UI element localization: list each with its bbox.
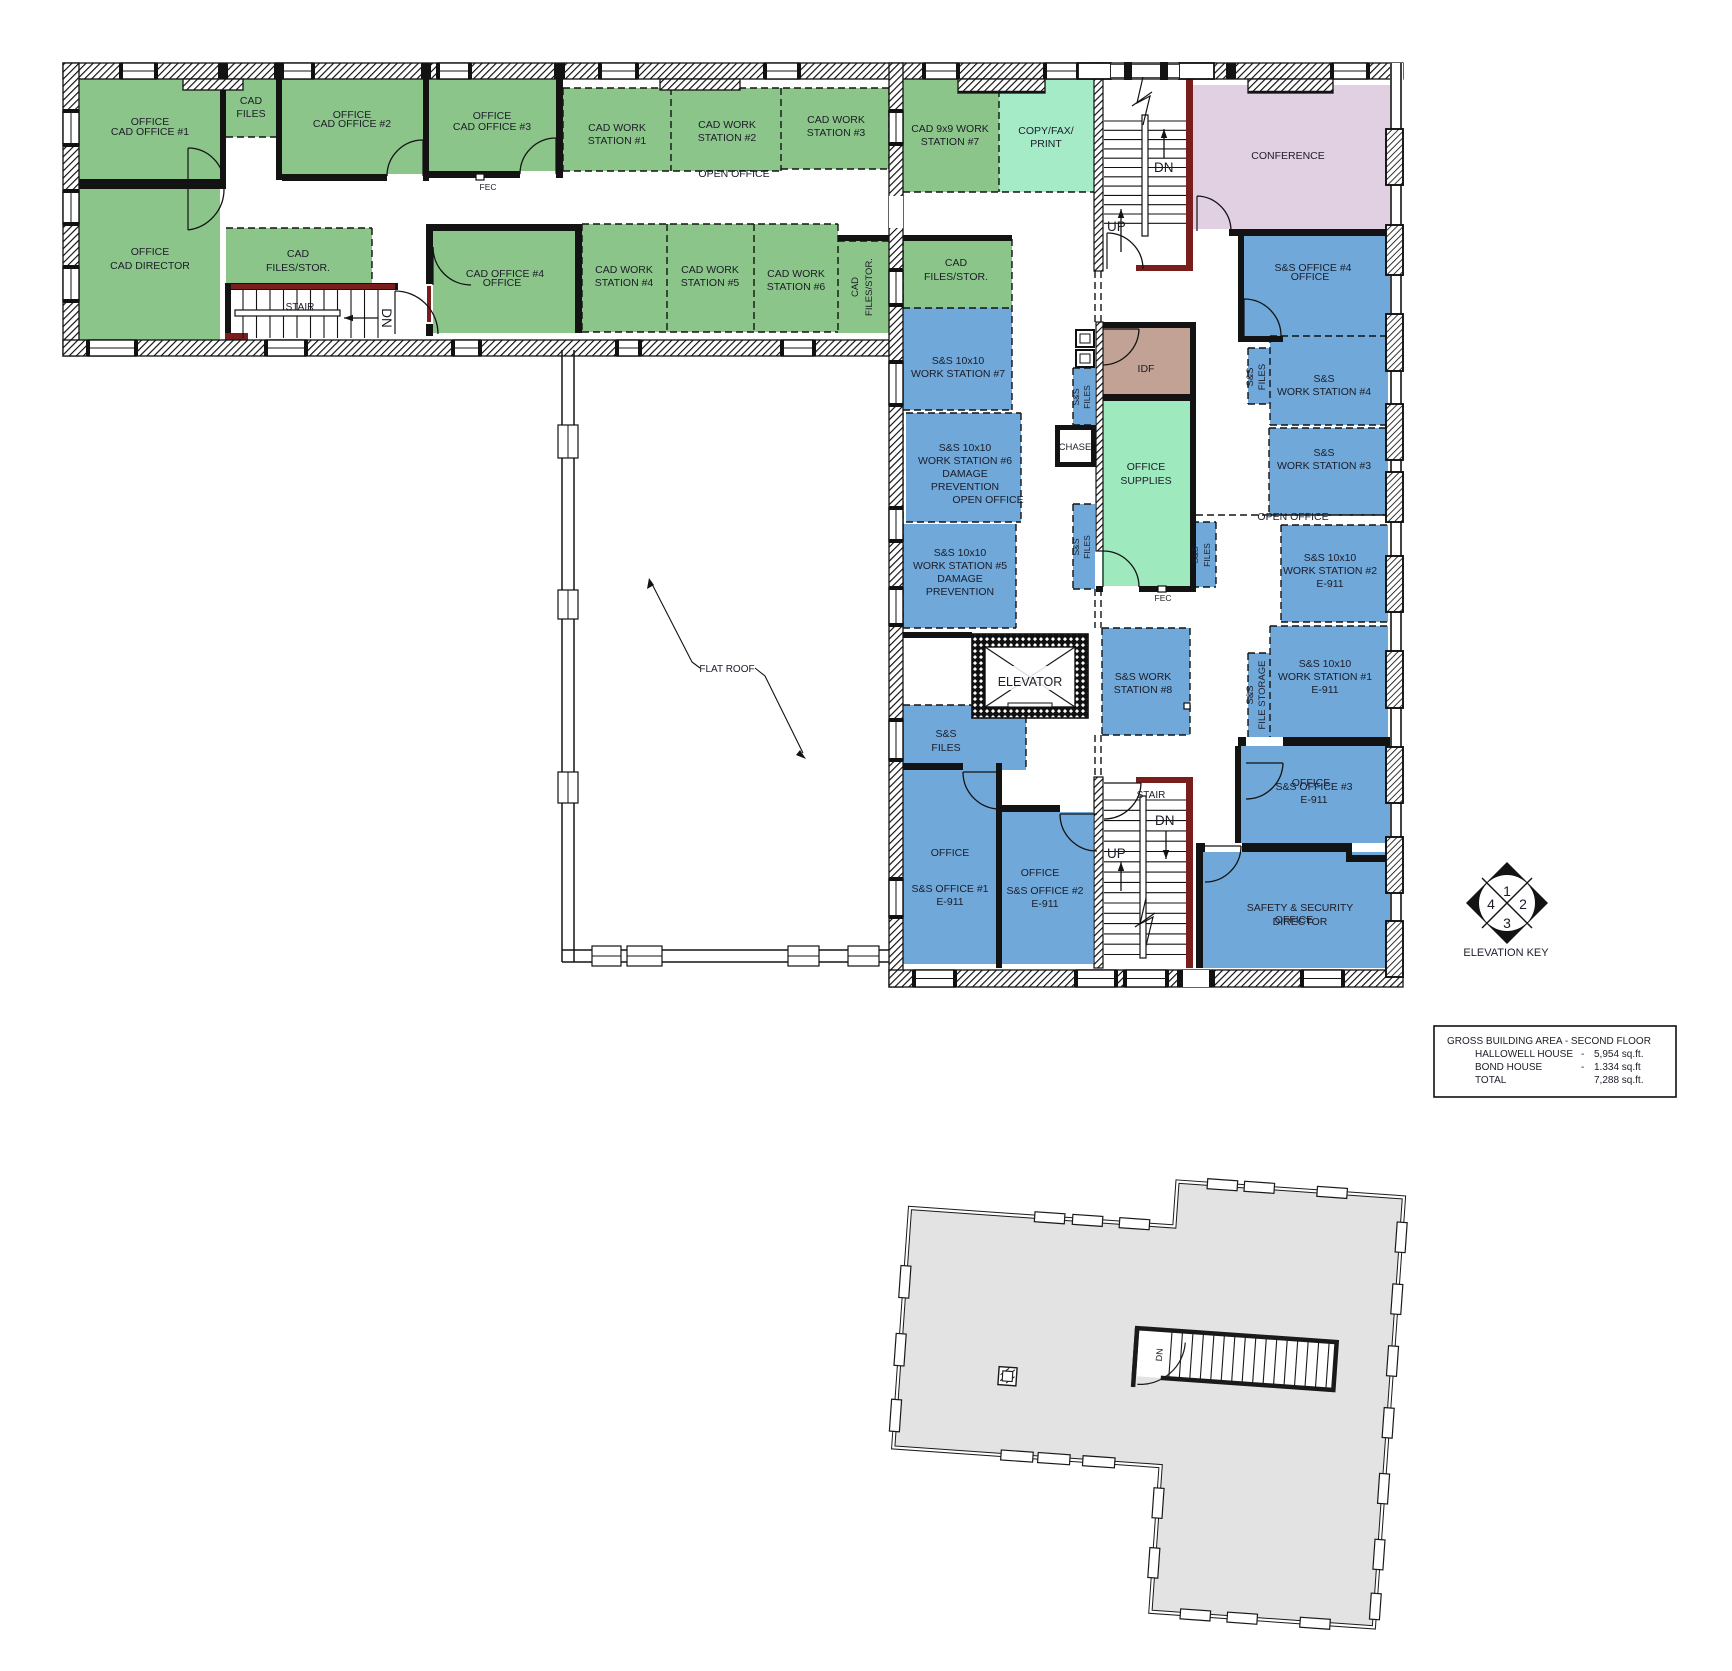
svg-text:STATION #1: STATION #1 [588,135,647,147]
svg-text:CHASE: CHASE [1059,442,1092,453]
svg-text:STATION #8: STATION #8 [1114,684,1173,696]
svg-text:WORK STATION #1: WORK STATION #1 [1278,671,1372,683]
svg-text:DN: DN [1154,1348,1165,1362]
svg-text:S&S 10x10: S&S 10x10 [1299,658,1352,670]
svg-text:UP: UP [1107,219,1126,234]
svg-text:CAD OFFICE #3: CAD OFFICE #3 [453,121,531,133]
svg-text:S&S 10x10: S&S 10x10 [934,547,987,559]
svg-text:DN: DN [379,308,394,328]
svg-text:STAIR: STAIR [1137,790,1166,801]
svg-text:FILES: FILES [931,742,960,754]
svg-text:FILES: FILES [1082,385,1092,409]
svg-text:OFFICE: OFFICE [131,246,170,258]
svg-text:S&S OFFICE #2: S&S OFFICE #2 [1006,885,1083,897]
svg-text:SAFETY & SECURITY: SAFETY & SECURITY [1247,902,1354,914]
svg-text:CAD DIRECTOR: CAD DIRECTOR [110,260,190,272]
svg-text:CAD 9x9 WORK: CAD 9x9 WORK [911,123,989,135]
svg-text:CAD WORK: CAD WORK [595,264,653,276]
svg-text:COPY/FAX/: COPY/FAX/ [1018,125,1074,137]
svg-text:CAD OFFICE #1: CAD OFFICE #1 [111,126,189,138]
svg-text:CAD: CAD [945,257,968,269]
svg-text:4: 4 [1487,896,1495,912]
svg-text:1.334 sq.ft: 1.334 sq.ft [1594,1062,1641,1073]
svg-text:CAD: CAD [850,277,861,297]
svg-text:SUPPLIES: SUPPLIES [1120,475,1171,487]
svg-text:STATION #4: STATION #4 [595,277,654,289]
svg-text:DN: DN [1155,813,1175,828]
svg-text:S&S: S&S [1071,388,1081,405]
svg-text:DAMAGE: DAMAGE [937,573,983,585]
svg-text:OPEN OFFICE: OPEN OFFICE [1257,511,1328,523]
svg-text:OFFICE: OFFICE [931,847,970,859]
svg-text:CAD WORK: CAD WORK [681,264,739,276]
svg-text:BOND HOUSE: BOND HOUSE [1475,1062,1543,1073]
svg-text:STATION #7: STATION #7 [921,136,980,148]
svg-text:E-911: E-911 [1300,794,1327,806]
svg-text:CAD: CAD [240,95,263,107]
svg-text:TOTAL: TOTAL [1475,1075,1507,1086]
svg-text:CAD OFFICE #2: CAD OFFICE #2 [313,118,391,130]
svg-text:CONFERENCE: CONFERENCE [1251,150,1325,162]
svg-text:CAD WORK: CAD WORK [588,122,646,134]
svg-text:OFFICE: OFFICE [1021,867,1060,879]
svg-text:FILE STORAGE: FILE STORAGE [1257,661,1268,730]
svg-text:3: 3 [1503,915,1511,931]
svg-text:STAIR: STAIR [286,302,315,313]
svg-text:-: - [1581,1062,1584,1073]
svg-text:FILES: FILES [1257,364,1268,390]
svg-text:S&S: S&S [1190,546,1200,563]
svg-text:ELEVATION KEY: ELEVATION KEY [1463,947,1549,959]
svg-text:S&S: S&S [1313,447,1334,459]
svg-text:OPEN OFFICE: OPEN OFFICE [698,168,769,180]
svg-text:PRINT: PRINT [1030,138,1062,150]
svg-text:E-911: E-911 [936,896,963,908]
svg-text:PREVENTION: PREVENTION [926,586,994,598]
svg-text:WORK STATION #6: WORK STATION #6 [918,455,1012,467]
svg-text:HALLOWELL HOUSE: HALLOWELL HOUSE [1475,1049,1573,1060]
svg-text:GROSS BUILDING AREA - SECOND F: GROSS BUILDING AREA - SECOND FLOOR [1447,1036,1651,1047]
svg-text:OFFICE: OFFICE [1275,914,1314,926]
svg-text:FLAT ROOF: FLAT ROOF [699,664,754,675]
svg-text:S&S OFFICE #1: S&S OFFICE #1 [911,883,988,895]
svg-text:FILES/STOR.: FILES/STOR. [924,271,988,283]
svg-text:STATION #5: STATION #5 [681,277,740,289]
svg-text:FILES: FILES [1082,535,1092,559]
svg-text:S&S: S&S [1245,685,1256,704]
svg-text:S&S: S&S [935,728,956,740]
svg-text:2: 2 [1519,896,1527,912]
svg-text:S&S: S&S [1313,373,1334,385]
svg-text:E-911: E-911 [1311,684,1338,696]
svg-text:DN: DN [1154,160,1174,175]
svg-text:CAD WORK: CAD WORK [807,114,865,126]
svg-text:FILES: FILES [1202,543,1212,567]
svg-text:STATION #6: STATION #6 [767,281,826,293]
svg-text:WORK STATION #7: WORK STATION #7 [911,368,1005,380]
svg-text:DAMAGE: DAMAGE [942,468,988,480]
svg-text:-: - [1581,1049,1584,1060]
svg-text:OFFICE: OFFICE [483,277,522,289]
svg-text:S&S: S&S [1071,538,1081,555]
svg-text:FEC: FEC [480,182,497,192]
svg-text:S&S 10x10: S&S 10x10 [932,355,985,367]
svg-text:STATION #2: STATION #2 [698,132,757,144]
svg-text:5,954 sq.ft.: 5,954 sq.ft. [1594,1049,1643,1060]
svg-text:E-911: E-911 [1316,578,1343,590]
svg-text:CAD WORK: CAD WORK [698,119,756,131]
svg-text:STATION #3: STATION #3 [807,127,866,139]
svg-text:S&S 10x10: S&S 10x10 [939,442,992,454]
svg-text:WORK STATION #4: WORK STATION #4 [1277,386,1371,398]
svg-text:OFFICE: OFFICE [1127,461,1166,473]
svg-text:OPEN OFFICE: OPEN OFFICE [952,494,1023,506]
svg-text:PREVENTION: PREVENTION [931,481,999,493]
svg-text:WORK STATION #2: WORK STATION #2 [1283,565,1377,577]
svg-text:CAD: CAD [287,248,310,260]
svg-text:IDF: IDF [1138,363,1155,375]
svg-text:E-911: E-911 [1031,898,1058,910]
svg-text:CAD WORK: CAD WORK [767,268,825,280]
svg-text:FEC: FEC [1155,593,1172,603]
svg-text:S&S WORK: S&S WORK [1115,671,1172,683]
svg-text:S&S 10x10: S&S 10x10 [1304,552,1357,564]
svg-text:WORK STATION #3: WORK STATION #3 [1277,460,1371,472]
svg-text:WORK STATION #5: WORK STATION #5 [913,560,1007,572]
svg-text:FILES: FILES [236,108,265,120]
svg-text:OFFICE: OFFICE [1292,777,1331,789]
svg-text:7,288 sq.ft.: 7,288 sq.ft. [1594,1075,1643,1086]
svg-text:ELEVATOR: ELEVATOR [998,675,1063,689]
svg-text:S&S: S&S [1245,367,1256,386]
svg-text:1: 1 [1503,883,1511,899]
svg-text:OFFICE: OFFICE [1291,271,1330,283]
svg-text:FILES/STOR.: FILES/STOR. [266,262,330,274]
svg-text:FILES/STOR.: FILES/STOR. [864,258,875,316]
svg-text:UP: UP [1107,846,1126,861]
